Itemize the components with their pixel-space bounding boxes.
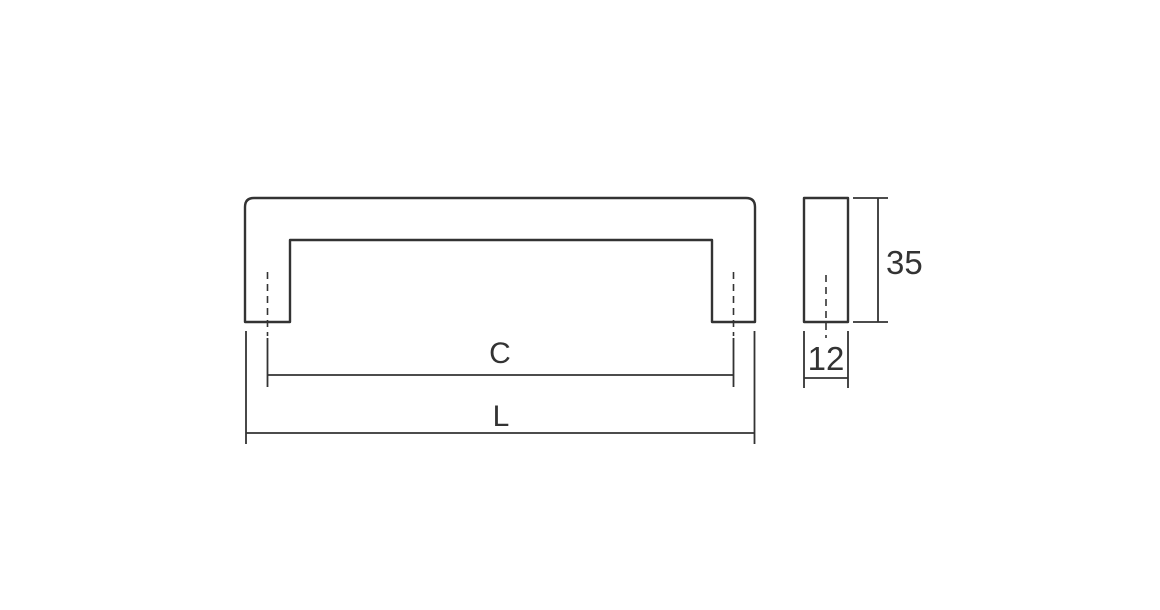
width-dim-label: 12 [808, 340, 845, 377]
dimension-drawing-svg: C L 35 12 [0, 0, 1160, 610]
c-dim-label: C [489, 337, 511, 370]
l-dim-label: L [493, 400, 510, 433]
handle-dimension-drawing: C L 35 12 [0, 0, 1160, 610]
height-dim-label: 35 [886, 244, 923, 281]
handle-front-outline [245, 198, 755, 322]
